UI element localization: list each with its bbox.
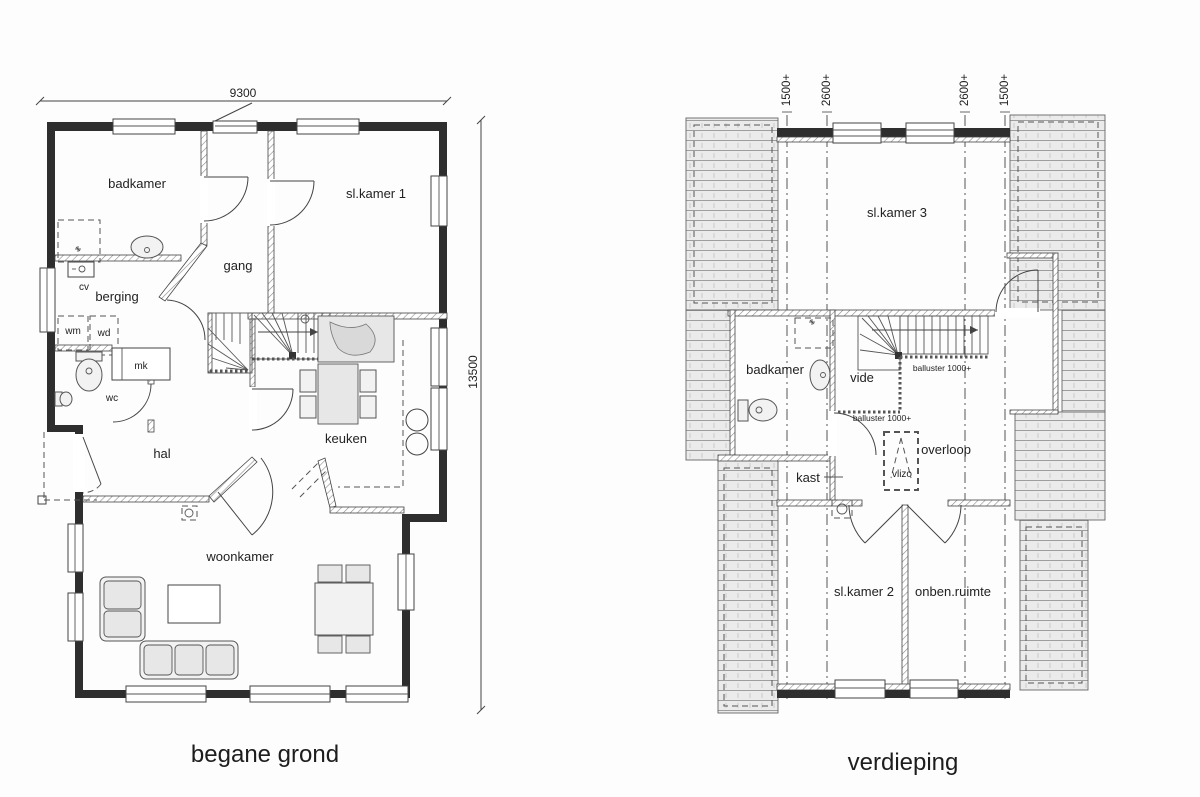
caption-upper-floor: verdieping [848, 749, 959, 776]
label-vlizo: vlizo [892, 469, 912, 480]
window [398, 554, 414, 610]
label-mk: mk [134, 361, 148, 372]
label-wd: wd [97, 328, 111, 339]
room-label-gang: gang [224, 258, 253, 273]
room-label-sl-kamer-1: sl.kamer 1 [346, 186, 406, 201]
hand-basin [55, 392, 72, 406]
room-label-berging: berging [95, 289, 138, 304]
floor-plan-upper: 1500+ 2600+ 2600+ 1500+ sl.kamer 3 badka… [686, 74, 1105, 776]
vlizo-hatch [884, 432, 918, 490]
room-label-woonkamer: woonkamer [205, 549, 274, 564]
room-label-kast: kast [796, 470, 820, 485]
toilet [76, 352, 102, 391]
window [40, 268, 55, 332]
tilt-window [213, 103, 257, 133]
height-contour-lines [782, 112, 1010, 700]
room-label-onben-ruimte: onben.ruimte [915, 584, 991, 599]
label-wm: wm [64, 326, 81, 337]
height-mark-4: 1500+ [999, 74, 1011, 107]
window [126, 686, 206, 702]
window [906, 123, 954, 143]
height-mark-3: 2600+ [959, 74, 971, 107]
window [431, 176, 447, 226]
sink-basin [406, 409, 428, 431]
livingroom-furniture [100, 565, 373, 679]
label-cv: cv [79, 282, 89, 293]
window [297, 119, 359, 134]
floor-plan-ground: 9300 13500 badkamer sl.kamer 1 gang cv b… [36, 86, 485, 768]
washbasin [810, 360, 830, 390]
room-label-badkamer: badkamer [108, 176, 166, 191]
window [431, 328, 447, 386]
floorplan-sheet: 9300 13500 badkamer sl.kamer 1 gang cv b… [0, 0, 1200, 797]
entry-outline [38, 432, 97, 504]
window [68, 593, 83, 641]
front-door [73, 434, 101, 493]
coffee-table [168, 585, 220, 623]
room-label-sl-kamer-2: sl.kamer 2 [834, 584, 894, 599]
flue-symbol [182, 506, 197, 520]
label-balluster-2: balluster 1000+ [853, 413, 911, 423]
floorplan-drawing: 9300 13500 badkamer sl.kamer 1 gang cv b… [0, 0, 1200, 797]
cv-unit [68, 262, 94, 277]
room-label-hal: hal [153, 446, 170, 461]
window [431, 388, 447, 450]
tap-symbol [809, 319, 815, 325]
window [113, 119, 175, 134]
dimension-width: 9300 [230, 86, 257, 100]
dining-set [315, 565, 373, 653]
height-mark-2: 2600+ [821, 74, 833, 107]
toilet [738, 399, 777, 421]
room-label-wc: wc [105, 393, 118, 404]
room-label-keuken: keuken [325, 431, 367, 446]
bathroom-fixtures-ground [58, 220, 163, 277]
kitchen-table [300, 364, 376, 424]
tap-symbol [75, 246, 81, 252]
stairs-ground [208, 313, 330, 373]
label-balluster-1: balluster 1000+ [913, 363, 971, 373]
room-label-overloop: overloop [921, 442, 971, 457]
window [835, 680, 885, 698]
window [833, 123, 881, 143]
dimension-height: 13500 [466, 355, 480, 389]
height-mark-1: 1500+ [781, 74, 793, 107]
room-label-badkamer-upper: badkamer [746, 362, 804, 377]
window [250, 686, 330, 702]
window [910, 680, 958, 698]
window [68, 524, 83, 572]
sink-basin [406, 433, 428, 455]
caption-ground-floor: begane grond [191, 741, 339, 768]
room-label-vide: vide [850, 370, 874, 385]
washbasin [131, 236, 163, 258]
sofa-three-seat [140, 641, 238, 679]
sofa-two-seat [100, 577, 145, 641]
room-label-sl-kamer-3: sl.kamer 3 [867, 205, 927, 220]
window [346, 686, 408, 702]
